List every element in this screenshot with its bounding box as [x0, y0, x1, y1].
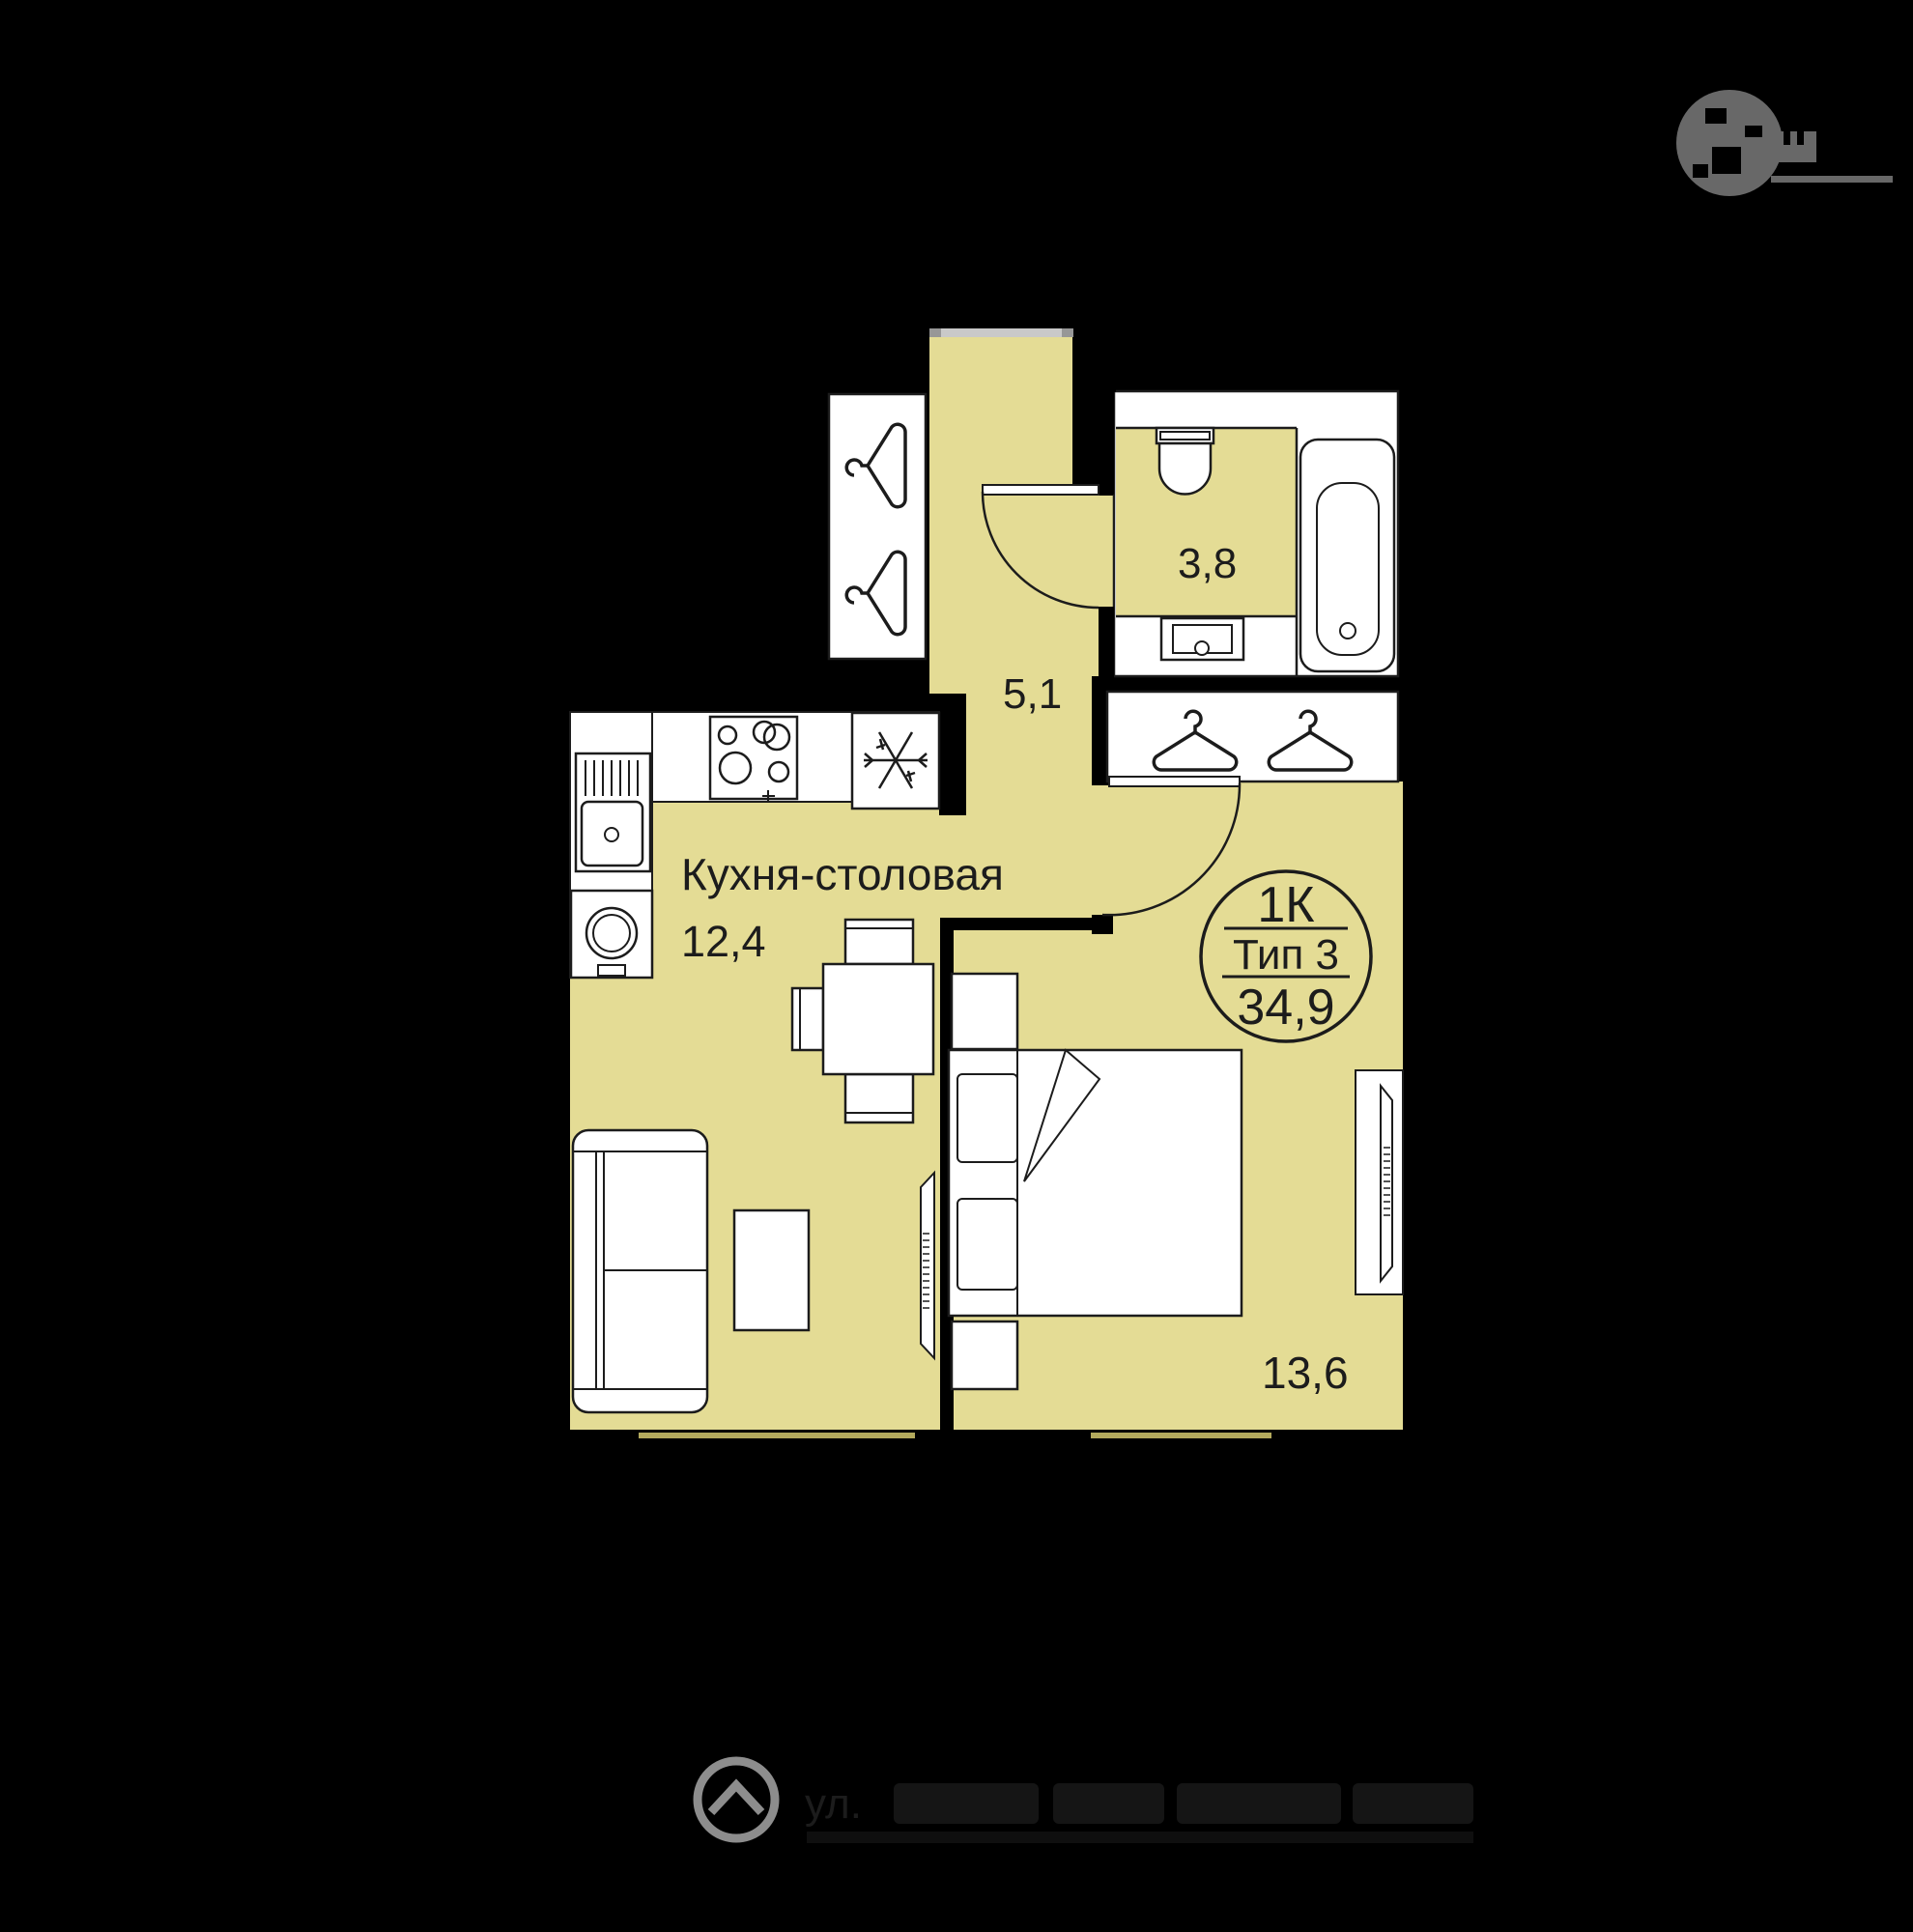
bedroom-wall-unit	[1356, 1070, 1403, 1294]
bathroom	[1114, 391, 1398, 676]
floor-plan-svg: 1К Тип 3 34,9 Кухня-столовая 12,4 5,1 3,…	[0, 0, 1913, 1932]
wall	[939, 697, 966, 815]
pillow	[957, 1074, 1017, 1162]
pillow	[957, 1199, 1017, 1290]
toilet	[1156, 428, 1213, 495]
hallway-floor	[929, 335, 1072, 499]
bedroom-area: 13,6	[1262, 1348, 1349, 1398]
bathroom-sink	[1161, 618, 1243, 660]
address-watermark-text: ул.	[805, 1780, 862, 1828]
wall	[940, 918, 1110, 930]
hallway-area: 5,1	[1003, 670, 1062, 718]
window-bar	[1091, 1433, 1271, 1438]
address-watermark-shadow	[807, 1832, 1473, 1843]
nightstand	[952, 974, 1017, 1049]
address-watermark-redacted	[894, 1783, 1473, 1824]
badge-total-area: 34,9	[1237, 980, 1334, 1036]
builder-logo-mark	[1776, 131, 1816, 162]
washing-machine	[571, 891, 652, 978]
kitchen-label: Кухня-столовая	[681, 849, 1004, 899]
tv-panel	[921, 1173, 934, 1358]
badge-type-label: Тип 3	[1233, 931, 1339, 979]
builder-logo-icon	[1676, 90, 1783, 196]
kitchen-sink	[576, 753, 650, 871]
coffee-table	[734, 1210, 809, 1330]
wardrobe-left	[829, 394, 926, 659]
dining-table	[823, 964, 933, 1074]
kitchen-area: 12,4	[681, 917, 766, 966]
wall	[1072, 328, 1116, 392]
chair	[792, 988, 823, 1050]
entrance-door	[929, 328, 1073, 337]
stove-icon	[710, 717, 797, 803]
builder-logo-underline	[1771, 176, 1893, 183]
wall	[1092, 676, 1108, 785]
sofa	[573, 1130, 707, 1412]
badge-rooms-label: 1К	[1257, 877, 1314, 933]
nightstand	[952, 1321, 1017, 1389]
bathtub	[1300, 440, 1394, 671]
bathroom-area: 3,8	[1178, 540, 1237, 587]
chair	[845, 920, 913, 964]
chair	[845, 1074, 913, 1122]
floorplan-page: 1К Тип 3 34,9 Кухня-столовая 12,4 5,1 3,…	[0, 0, 1913, 1932]
wall	[1099, 392, 1114, 495]
hall-wardrobe	[1107, 692, 1398, 781]
fridge	[852, 713, 939, 809]
wall	[1092, 915, 1113, 934]
window-bar	[639, 1433, 915, 1438]
wall	[541, 694, 966, 712]
